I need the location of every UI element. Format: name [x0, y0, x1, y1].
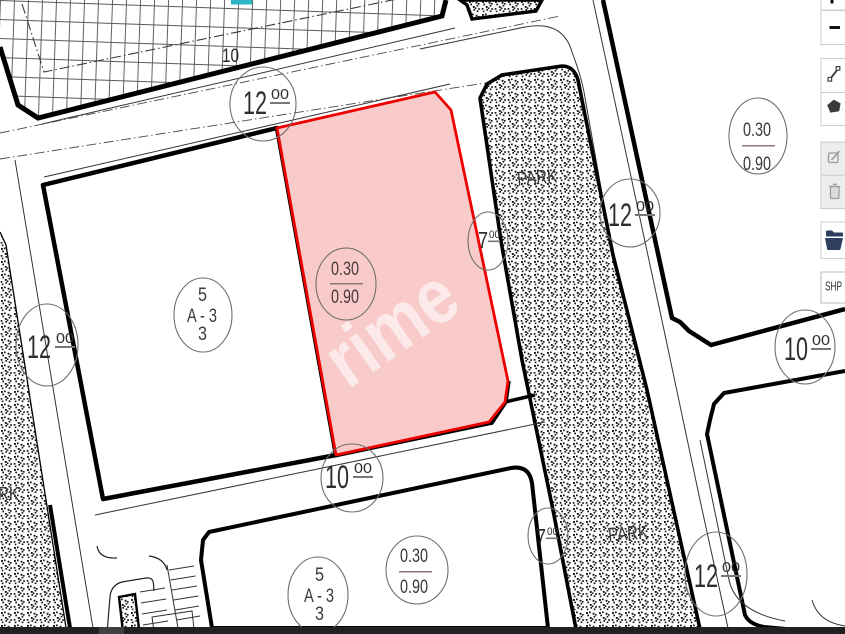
svg-text:SHP: SHP	[825, 279, 842, 294]
svg-text:0.30: 0.30	[400, 546, 428, 567]
svg-text:12: 12	[27, 329, 51, 365]
svg-text:PARK: PARK	[516, 165, 558, 190]
svg-text:12: 12	[243, 85, 267, 121]
svg-text:00: 00	[354, 460, 372, 477]
svg-text:0.30: 0.30	[331, 259, 359, 280]
svg-text:7: 7	[536, 524, 546, 550]
svg-text:10: 10	[222, 46, 239, 67]
svg-text:12: 12	[694, 558, 718, 594]
svg-text:5: 5	[315, 565, 324, 586]
svg-text:00: 00	[56, 330, 74, 347]
svg-text:00: 00	[489, 229, 500, 241]
svg-text:3: 3	[315, 604, 324, 625]
svg-text:0.90: 0.90	[743, 154, 771, 175]
svg-text:0.90: 0.90	[331, 287, 359, 308]
svg-text:00: 00	[812, 332, 830, 349]
svg-text:12: 12	[608, 197, 632, 233]
svg-text:00: 00	[636, 198, 654, 215]
svg-text:PARK: PARK	[607, 521, 649, 546]
svg-text:10: 10	[784, 331, 808, 367]
svg-text:00: 00	[547, 526, 558, 538]
svg-text:RK: RK	[0, 484, 19, 504]
svg-text:00: 00	[271, 86, 289, 103]
svg-text:10: 10	[325, 459, 349, 495]
svg-text:0.90: 0.90	[400, 577, 428, 598]
svg-text:0.30: 0.30	[743, 120, 771, 141]
svg-text:7: 7	[478, 227, 488, 253]
svg-text:5: 5	[198, 285, 207, 306]
svg-text:00: 00	[722, 559, 740, 576]
svg-text:3: 3	[198, 324, 207, 345]
